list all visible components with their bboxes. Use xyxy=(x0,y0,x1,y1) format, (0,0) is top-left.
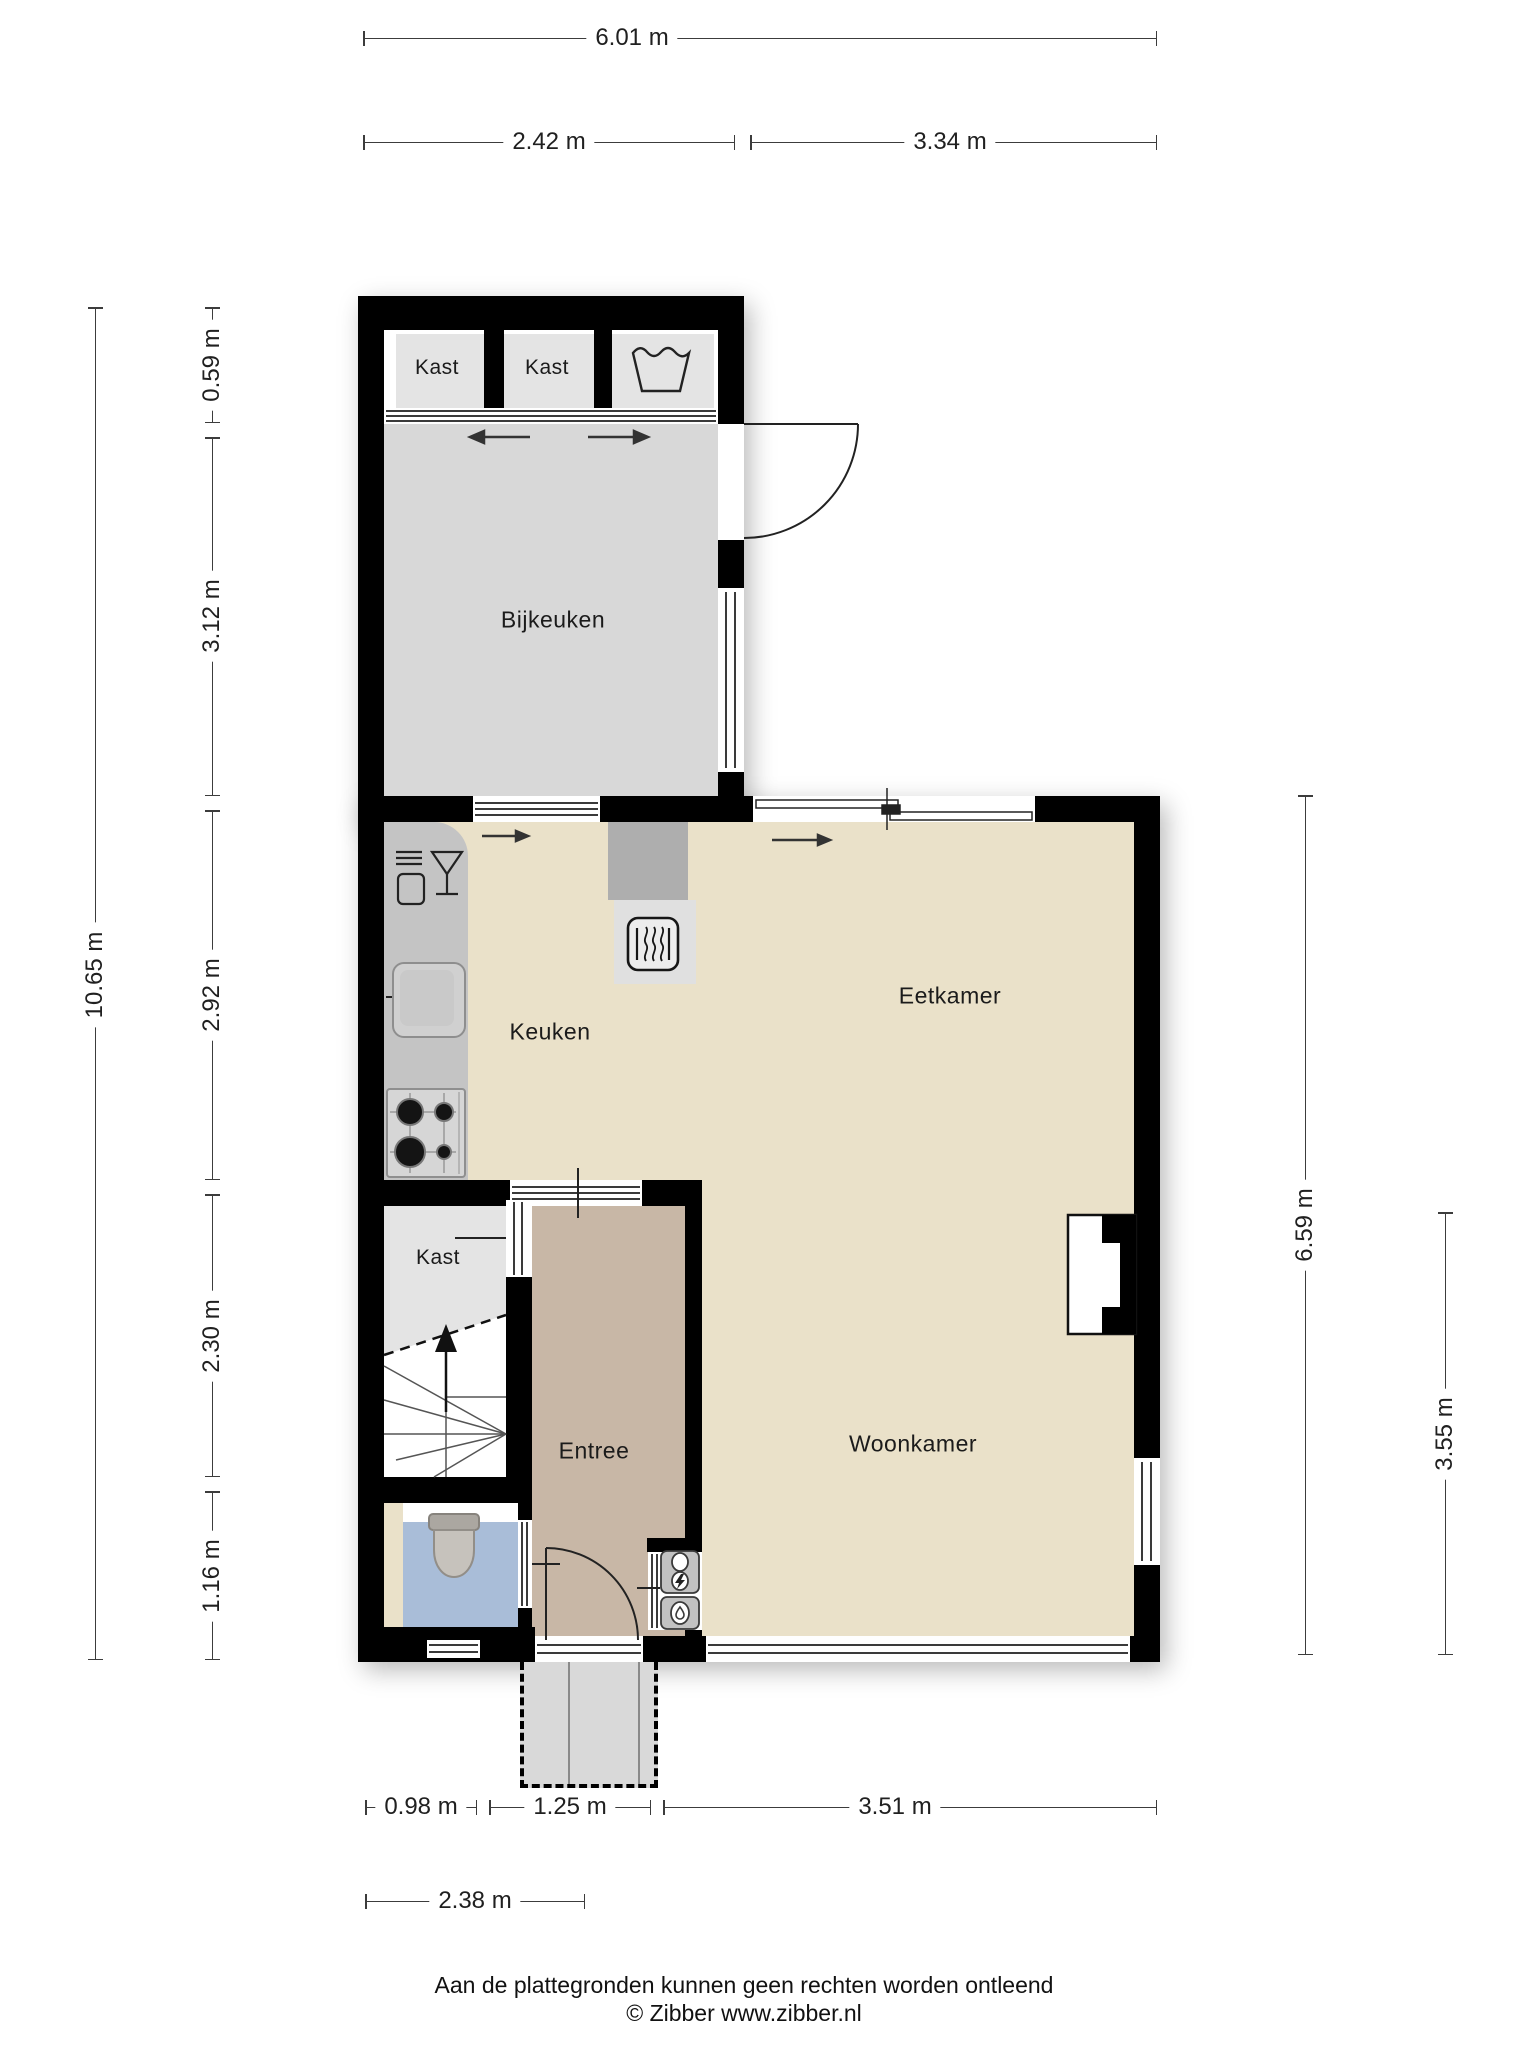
cupboard-line xyxy=(651,1554,653,1628)
toilet-door-opening xyxy=(518,1520,532,1608)
door-frame-line xyxy=(521,1202,523,1275)
toilet-floor xyxy=(403,1522,518,1627)
dim-label-left-d: 2.30 m xyxy=(197,1290,227,1381)
wall-annex-right-b xyxy=(718,540,744,588)
meter-cupboard-recess xyxy=(648,1552,702,1630)
dim-label-left-e: 1.16 m xyxy=(197,1530,227,1621)
bijkeuken-window xyxy=(718,588,744,772)
room-label-bijkeuken: Bijkeuken xyxy=(501,607,605,634)
wall-kast-divider-1 xyxy=(484,330,504,410)
window-glazing-line xyxy=(708,1652,1128,1654)
wall-kast-hal-b xyxy=(506,1277,532,1477)
washer-closet-floor xyxy=(612,334,714,408)
dim-label-bottom-b: 1.25 m xyxy=(524,1792,615,1822)
dim-label-right-lower: 3.55 m xyxy=(1430,1388,1460,1479)
track-line xyxy=(386,410,716,412)
track-line xyxy=(512,1192,640,1194)
dim-label-top-total: 6.01 m xyxy=(586,23,677,53)
window-glazing-line xyxy=(429,1651,478,1653)
porch-line-2 xyxy=(638,1662,640,1784)
track-line xyxy=(512,1186,640,1188)
wall-right-a xyxy=(1134,810,1160,1458)
chimney-column xyxy=(608,822,688,900)
window-glazing-line xyxy=(734,592,736,768)
kast-hal-door-opening xyxy=(506,1200,532,1277)
window-glazing-line xyxy=(725,592,727,768)
window-glazing-line xyxy=(708,1644,1128,1646)
dim-label-left-total: 10.65 m xyxy=(80,923,110,1028)
wall-entree-right xyxy=(685,1206,702,1538)
dim-label-left-a: 0.59 m xyxy=(197,319,227,410)
dim-label-top-left: 2.42 m xyxy=(503,127,594,157)
bijkeuken-exterior-door-opening xyxy=(718,424,744,540)
floorplan-canvas: Kast Kast Bijkeuken Keuken Eetkamer Kast… xyxy=(0,0,1536,2048)
entrance-porch xyxy=(520,1662,658,1788)
wall-kast-divider-2 xyxy=(594,330,612,410)
track-line xyxy=(475,802,598,804)
door-frame-line xyxy=(513,1202,515,1275)
dim-label-bottom-c: 3.51 m xyxy=(849,1792,940,1822)
room-label-kast-top-2: Kast xyxy=(525,356,569,380)
porch-line-1 xyxy=(568,1662,570,1784)
toilet-window xyxy=(427,1640,480,1658)
track-line xyxy=(386,420,716,422)
room-label-entree: Entree xyxy=(559,1438,630,1465)
kast-sliding-track xyxy=(384,408,718,424)
wall-annex-right-a xyxy=(718,296,744,424)
dim-label-left-c: 2.92 m xyxy=(197,949,227,1040)
footer-copyright: © Zibber www.zibber.nl xyxy=(626,2000,862,2027)
threshold-line xyxy=(537,1644,641,1646)
heater-cabinet xyxy=(614,900,696,984)
front-door-opening xyxy=(535,1636,643,1662)
track-line xyxy=(475,814,598,816)
wall-annex-top xyxy=(358,296,744,330)
room-label-kast-top-1: Kast xyxy=(415,356,459,380)
toilet-shelf xyxy=(403,1503,518,1522)
sink-inner xyxy=(400,970,454,1026)
track-line xyxy=(475,808,598,810)
wall-keuken-entree-a xyxy=(384,1180,510,1206)
bijkeuken-door-swing xyxy=(744,424,858,538)
dim-line-top-total xyxy=(363,38,1157,39)
wall-meter-stub xyxy=(647,1538,702,1552)
dim-label-top-right: 3.34 m xyxy=(904,127,995,157)
woonkamer-side-window xyxy=(1134,1458,1160,1565)
room-label-keuken: Keuken xyxy=(509,1019,590,1046)
wall-under-stairs xyxy=(358,1477,532,1503)
door-frame-line xyxy=(526,1522,528,1606)
window-glazing-line xyxy=(1141,1462,1143,1561)
door-frame-line xyxy=(521,1522,523,1606)
woonkamer-front-window xyxy=(706,1636,1130,1662)
wall-mid-a xyxy=(358,796,473,822)
room-label-kast-hal: Kast xyxy=(416,1246,460,1270)
cupboard-line xyxy=(656,1554,658,1628)
dim-label-left-b: 3.12 m xyxy=(197,570,227,661)
wall-bottom-corner xyxy=(358,1627,535,1636)
wall-left xyxy=(358,296,384,1662)
sink-icon xyxy=(392,962,466,1038)
room-label-woonkamer: Woonkamer xyxy=(849,1431,977,1458)
room-label-eetkamer: Eetkamer xyxy=(899,983,1001,1010)
dim-label-bottom-total: 2.38 m xyxy=(429,1886,520,1916)
footer-disclaimer: Aan de plattegronden kunnen geen rechten… xyxy=(435,1972,1054,1999)
dim-label-right-total: 6.59 m xyxy=(1290,1179,1320,1270)
window-glazing-line xyxy=(1150,1462,1152,1561)
wall-keuken-entree-b xyxy=(642,1180,702,1206)
window-glazing-line xyxy=(429,1644,478,1646)
dim-label-bottom-a: 0.98 m xyxy=(375,1792,466,1822)
track-line xyxy=(386,415,716,417)
wall-toilet-a xyxy=(518,1503,532,1520)
wall-annex-right-c xyxy=(718,772,744,796)
bijkeuken-keuken-opening xyxy=(473,796,600,822)
wall-mid-b xyxy=(600,796,753,822)
threshold-line xyxy=(537,1652,641,1654)
eetkamer-sliding-door-opening xyxy=(753,796,1035,822)
